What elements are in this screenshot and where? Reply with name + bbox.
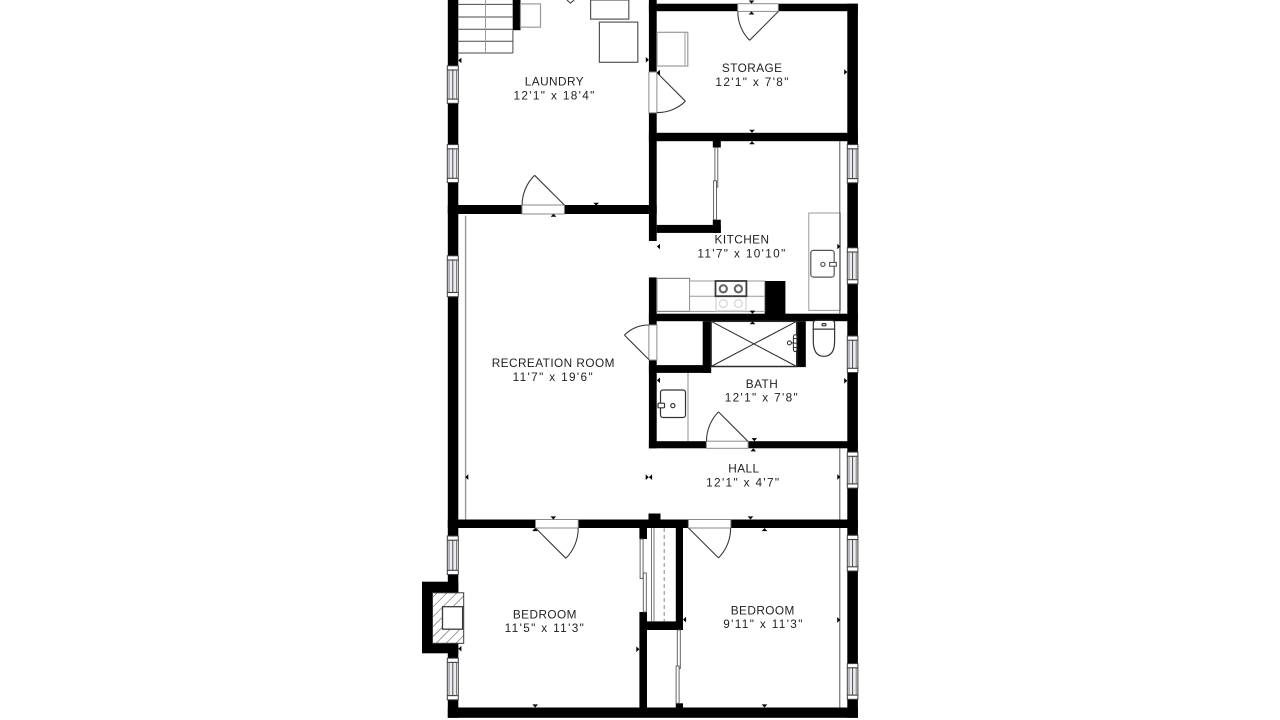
svg-text:9'11" x 11'3": 9'11" x 11'3" — [723, 617, 804, 631]
svg-text:11'7" x 19'6": 11'7" x 19'6" — [513, 370, 594, 384]
svg-text:STORAGE: STORAGE — [722, 61, 783, 75]
svg-text:12'1" x 7'8": 12'1" x 7'8" — [725, 391, 799, 405]
svg-text:12'1" x 4'7": 12'1" x 4'7" — [706, 475, 780, 489]
svg-text:12'1" x 18'4": 12'1" x 18'4" — [513, 88, 595, 102]
svg-text:11'7" x 10'10": 11'7" x 10'10" — [697, 246, 786, 260]
svg-text:LAUNDRY: LAUNDRY — [525, 75, 584, 89]
svg-text:BEDROOM: BEDROOM — [513, 607, 577, 621]
svg-text:BEDROOM: BEDROOM — [731, 604, 795, 618]
svg-text:BATH: BATH — [746, 377, 778, 391]
svg-text:11'5" x 11'3": 11'5" x 11'3" — [505, 621, 586, 635]
svg-text:12'1" x 7'8": 12'1" x 7'8" — [715, 75, 789, 89]
svg-text:KITCHEN: KITCHEN — [715, 233, 770, 247]
svg-text:RECREATION ROOM: RECREATION ROOM — [492, 356, 615, 370]
svg-text:HALL: HALL — [728, 462, 759, 476]
